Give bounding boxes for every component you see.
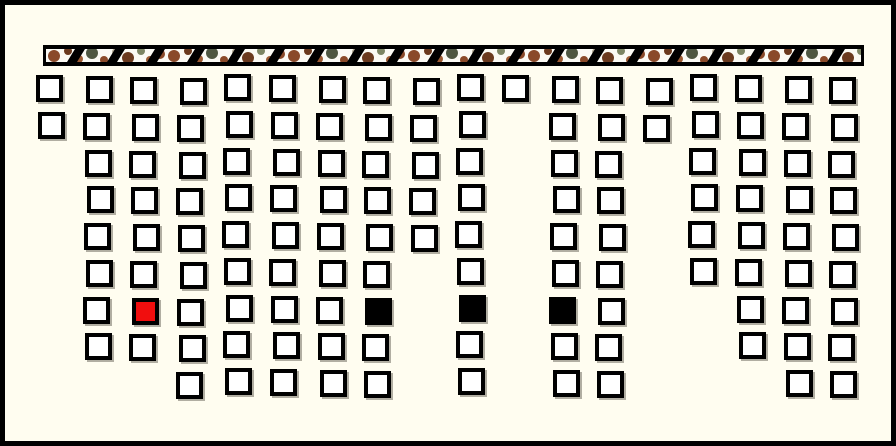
cell-r7-c12-black-piece[interactable]: [549, 297, 576, 324]
cell-r8-c5[interactable]: [223, 331, 250, 358]
cell-r9-c5[interactable]: [225, 368, 252, 395]
cell-r7-c13[interactable]: [598, 298, 625, 325]
cell-r3-c2[interactable]: [85, 150, 112, 177]
cell-r9-c17[interactable]: [786, 370, 813, 397]
cell-r5-c18[interactable]: [832, 224, 859, 251]
cell-r4-c5[interactable]: [225, 184, 252, 211]
cell-r9-c13[interactable]: [597, 371, 624, 398]
cell-r6-c17[interactable]: [785, 260, 812, 287]
cell-r8-c7[interactable]: [318, 333, 345, 360]
cell-r4-c10[interactable]: [458, 184, 485, 211]
camo-blob: [408, 50, 420, 62]
cell-r3-c8[interactable]: [362, 151, 389, 178]
cell-r6-c6[interactable]: [269, 259, 296, 286]
cell-r3-c4[interactable]: [179, 152, 206, 179]
cell-r5-c9[interactable]: [411, 225, 438, 252]
cell-r1-c11[interactable]: [502, 75, 529, 102]
cell-r6-c8[interactable]: [363, 261, 390, 288]
cell-r8-c8[interactable]: [362, 334, 389, 361]
cell-r1-c16[interactable]: [735, 75, 762, 102]
cell-r8-c12[interactable]: [551, 333, 578, 360]
cell-r3-c15[interactable]: [689, 148, 716, 175]
cell-r8-c13[interactable]: [595, 334, 622, 361]
camo-blob: [648, 50, 660, 62]
cell-r6-c15[interactable]: [690, 258, 717, 285]
cell-r5-c16[interactable]: [738, 222, 765, 249]
cell-r1-c5[interactable]: [224, 74, 251, 101]
cell-r1-c12[interactable]: [552, 76, 579, 103]
cell-r8-c17[interactable]: [784, 333, 811, 360]
cell-r8-c18[interactable]: [828, 334, 855, 361]
cell-r2-c17[interactable]: [782, 113, 809, 140]
cell-r1-c13[interactable]: [596, 77, 623, 104]
cell-r7-c2[interactable]: [83, 297, 110, 324]
cell-r6-c4[interactable]: [180, 262, 207, 289]
cell-r5-c6[interactable]: [272, 222, 299, 249]
cell-r8-c10[interactable]: [456, 331, 483, 358]
cell-r5-c13[interactable]: [599, 224, 626, 251]
cell-r2-c6[interactable]: [271, 112, 298, 139]
cell-r5-c12[interactable]: [550, 223, 577, 250]
cell-r9-c4[interactable]: [176, 372, 203, 399]
cell-r7-c18[interactable]: [831, 298, 858, 325]
cell-r5-c2[interactable]: [84, 223, 111, 250]
cell-r2-c8[interactable]: [365, 114, 392, 141]
cell-r5-c15[interactable]: [688, 221, 715, 248]
cell-r5-c10[interactable]: [455, 221, 482, 248]
cell-r2-c15[interactable]: [692, 111, 719, 138]
cell-r9-c12[interactable]: [553, 370, 580, 397]
cell-r6-c7[interactable]: [319, 260, 346, 287]
cell-r6-c3[interactable]: [130, 261, 157, 288]
cell-r6-c13[interactable]: [596, 261, 623, 288]
cell-r7-c17[interactable]: [782, 297, 809, 324]
cell-r2-c13[interactable]: [598, 114, 625, 141]
cell-r4-c12[interactable]: [553, 186, 580, 213]
cell-r3-c3[interactable]: [129, 151, 156, 178]
cell-r4-c17[interactable]: [786, 186, 813, 213]
cell-r4-c4[interactable]: [176, 188, 203, 215]
cell-r4-c3[interactable]: [131, 187, 158, 214]
cell-r5-c17[interactable]: [783, 223, 810, 250]
cell-r8-c6[interactable]: [273, 332, 300, 359]
cell-r3-c13[interactable]: [595, 151, 622, 178]
cell-r3-c5[interactable]: [223, 148, 250, 175]
cell-r4-c13[interactable]: [597, 187, 624, 214]
cell-r7-c6[interactable]: [271, 296, 298, 323]
cell-r7-c16[interactable]: [737, 296, 764, 323]
cell-r3-c7[interactable]: [318, 150, 345, 177]
cell-r2-c3[interactable]: [132, 114, 159, 141]
camo-blob: [768, 50, 780, 62]
camo-banner: [43, 45, 864, 66]
game-window: [0, 0, 896, 446]
cell-r4-c16[interactable]: [736, 185, 763, 212]
cell-r6-c2[interactable]: [86, 260, 113, 287]
cell-r7-c10-black-piece[interactable]: [459, 295, 486, 322]
cell-r9-c10[interactable]: [458, 368, 485, 395]
cell-r1-c1[interactable]: [36, 75, 63, 102]
cell-r8-c16[interactable]: [739, 332, 766, 359]
cell-r2-c12[interactable]: [549, 113, 576, 140]
cell-r1-c18[interactable]: [829, 77, 856, 104]
cell-r3-c9[interactable]: [412, 152, 439, 179]
camo-blob: [168, 50, 180, 62]
cell-r7-c5[interactable]: [226, 295, 253, 322]
board: [5, 5, 891, 441]
cell-r2-c9[interactable]: [410, 115, 437, 142]
cell-r3-c18[interactable]: [828, 151, 855, 178]
cell-r5-c5[interactable]: [222, 221, 249, 248]
cell-r8-c4[interactable]: [179, 335, 206, 362]
cell-r4-c2[interactable]: [87, 186, 114, 213]
cell-r8-c3[interactable]: [129, 334, 156, 361]
cell-r3-c6[interactable]: [273, 149, 300, 176]
cell-r5-c4[interactable]: [178, 225, 205, 252]
cell-r1-c6[interactable]: [269, 75, 296, 102]
cell-r5-c3[interactable]: [133, 224, 160, 251]
cell-r6-c5[interactable]: [224, 258, 251, 285]
cell-r3-c16[interactable]: [739, 149, 766, 176]
cell-r1-c4[interactable]: [180, 78, 207, 105]
cell-r8-c2[interactable]: [85, 333, 112, 360]
cell-r2-c2[interactable]: [83, 113, 110, 140]
cell-r4-c6[interactable]: [270, 185, 297, 212]
cell-r4-c18[interactable]: [830, 187, 857, 214]
cell-r1-c7[interactable]: [319, 76, 346, 103]
cell-r1-c17[interactable]: [785, 76, 812, 103]
cell-r6-c16[interactable]: [735, 259, 762, 286]
cell-r9-c6[interactable]: [270, 369, 297, 396]
cell-r4-c15[interactable]: [691, 184, 718, 211]
cell-r5-c7[interactable]: [317, 223, 344, 250]
cell-r1-c3[interactable]: [130, 77, 157, 104]
cell-r3-c12[interactable]: [551, 150, 578, 177]
cell-r6-c12[interactable]: [552, 260, 579, 287]
cell-r2-c5[interactable]: [226, 111, 253, 138]
cell-r9-c8[interactable]: [364, 371, 391, 398]
cell-r2-c1[interactable]: [38, 112, 65, 139]
cell-r3-c17[interactable]: [784, 150, 811, 177]
cell-r9-c7[interactable]: [320, 370, 347, 397]
cell-r4-c7[interactable]: [320, 186, 347, 213]
cell-r7-c4[interactable]: [177, 299, 204, 326]
cell-r2-c7[interactable]: [316, 113, 343, 140]
cell-r6-c18[interactable]: [829, 261, 856, 288]
cell-r3-c10[interactable]: [456, 148, 483, 175]
cell-r2-c18[interactable]: [831, 114, 858, 141]
cell-r2-c16[interactable]: [737, 112, 764, 139]
cell-r1-c9[interactable]: [413, 78, 440, 105]
camo-blob: [528, 50, 540, 62]
camo-blob: [48, 50, 60, 62]
cell-r7-c8-black-piece[interactable]: [365, 298, 392, 325]
cell-r4-c9[interactable]: [409, 188, 436, 215]
cell-r1-c10[interactable]: [457, 74, 484, 101]
cell-r1-c15[interactable]: [690, 74, 717, 101]
cell-r1-c14[interactable]: [646, 78, 673, 105]
cell-r2-c14[interactable]: [643, 115, 670, 142]
cell-r5-c8[interactable]: [366, 224, 393, 251]
cell-r6-c10[interactable]: [457, 258, 484, 285]
cell-r1-c8[interactable]: [363, 77, 390, 104]
camo-blob: [288, 50, 300, 62]
cell-r9-c18[interactable]: [830, 371, 857, 398]
cell-r7-c3-red-piece[interactable]: [132, 298, 159, 325]
cell-r2-c10[interactable]: [459, 111, 486, 138]
cell-r1-c2[interactable]: [86, 76, 113, 103]
cell-r2-c4[interactable]: [177, 115, 204, 142]
cell-r7-c7[interactable]: [316, 297, 343, 324]
cell-r4-c8[interactable]: [364, 187, 391, 214]
